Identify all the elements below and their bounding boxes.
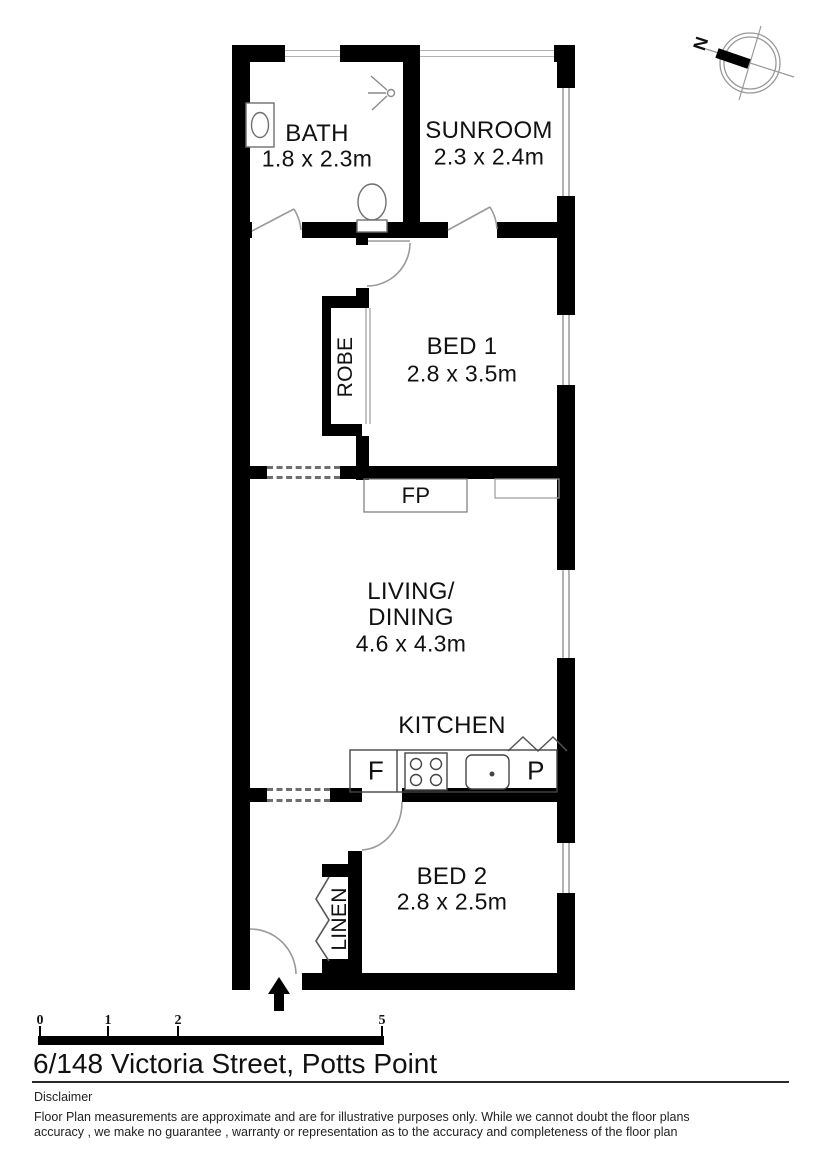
sink-icon [466,755,509,789]
label-fireplace: FP [402,483,431,509]
hearth-ledge [495,479,559,498]
disclaimer-line-2: accuracy , we make no guarantee , warran… [34,1125,794,1140]
label-kitchen: KITCHEN [398,712,505,740]
scale-tick-label-1: 1 [105,1013,112,1029]
dims-bed2: 2.8 x 2.5m [397,889,507,916]
disclaimer-block: Disclaimer Floor Plan measurements are a… [34,1090,794,1139]
toilet-icon [357,184,387,232]
pantry-bifold-door [508,737,567,751]
stove-icon [405,753,447,790]
entry-door [250,929,296,974]
scale-tick-label-5: 5 [379,1013,386,1029]
label-sunroom: SUNROOM [425,117,552,145]
scale-tick-label-2: 2 [175,1013,182,1029]
dims-bed1: 2.8 x 3.5m [407,361,517,388]
label-pantry: P [527,756,545,787]
dims-sunroom: 2.3 x 2.4m [434,144,544,171]
bath-door [252,209,301,231]
disclaimer-heading: Disclaimer [34,1090,794,1104]
label-bed1: BED 1 [427,333,498,361]
basin-icon [246,103,274,147]
compass-north-label: N [689,34,712,53]
label-fridge: F [368,756,384,787]
label-bed2: BED 2 [417,863,488,891]
sunroom-door [448,207,497,230]
label-robe: ROBE [334,337,358,398]
bed2-door [362,802,402,850]
label-linen: LINEN [328,887,352,950]
label-bath: BATH [285,120,348,148]
bed1-door [367,241,410,286]
address-title: 6/148 Victoria Street, Potts Point [33,1048,437,1080]
compass-icon: N [689,26,794,100]
dims-bath: 1.8 x 2.3m [262,146,372,173]
label-living-line2: DINING [368,604,454,632]
robe-front-line [366,308,370,424]
dims-living: 4.6 x 4.3m [356,631,466,658]
floor-plan-canvas: N BATH 1.8 x 2.3m SUNROOM 2.3 x 2.4m BED… [0,0,813,1150]
entry-arrow-icon [268,977,290,1011]
disclaimer-line-1: Floor Plan measurements are approximate … [34,1110,794,1125]
plan-linework: N [0,0,813,1150]
shower-icon [368,76,395,110]
label-living-line1: LIVING/ [367,578,454,606]
scale-tick-label-0: 0 [37,1013,44,1029]
